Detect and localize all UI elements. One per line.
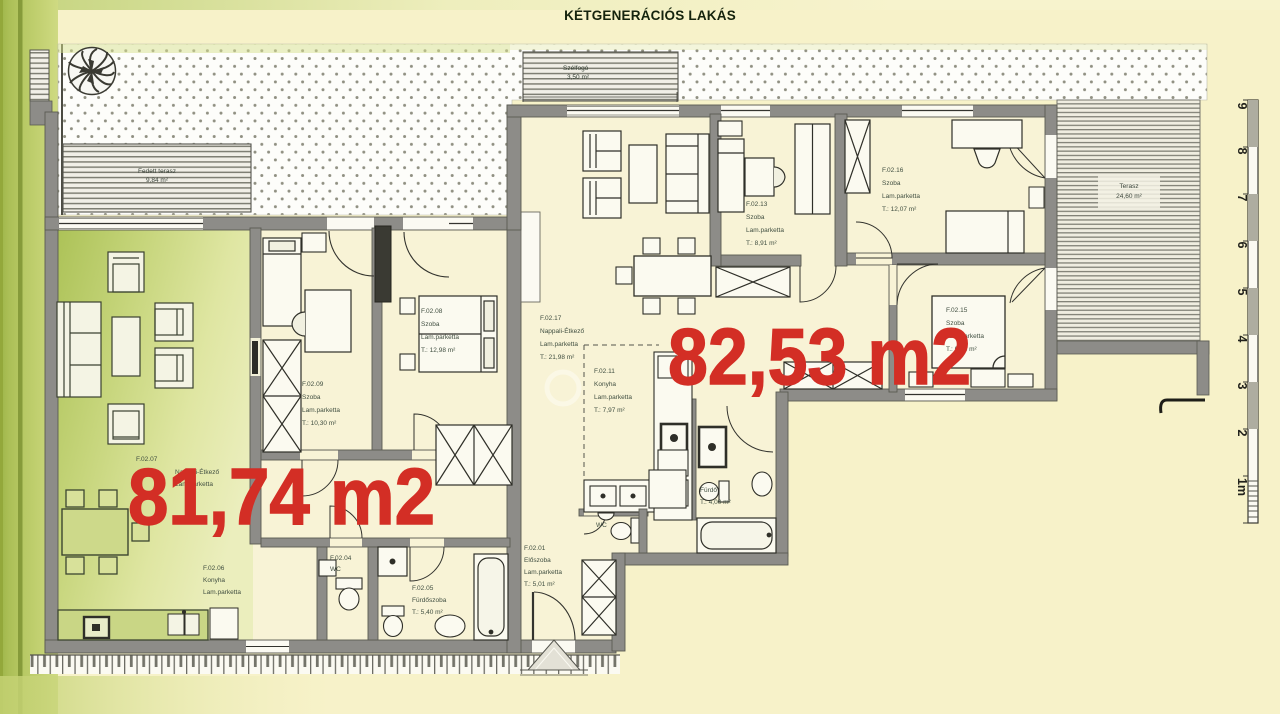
svg-text:Lam.parketta: Lam.parketta (203, 589, 241, 596)
svg-text:Lam.parketta: Lam.parketta (421, 334, 459, 341)
svg-text:Terasz: Terasz (1119, 183, 1138, 190)
svg-text:T.: 8,91 m²: T.: 8,91 m² (746, 240, 778, 247)
svg-text:Lam.parketta: Lam.parketta (540, 341, 578, 348)
svg-text:9,84 m²: 9,84 m² (146, 177, 169, 184)
svg-text:F.02.09: F.02.09 (302, 381, 324, 388)
svg-text:WC: WC (330, 566, 341, 573)
svg-text:T.: 7,97 m²: T.: 7,97 m² (594, 407, 626, 414)
svg-text:T.: 5,01 m²: T.: 5,01 m² (524, 581, 556, 588)
svg-text:Nappali-Étkező: Nappali-Étkező (540, 326, 584, 335)
svg-text:Fedett terasz: Fedett terasz (138, 168, 176, 175)
svg-text:F.02.04: F.02.04 (330, 555, 352, 562)
svg-text:T.: 5,40 m²: T.: 5,40 m² (412, 609, 444, 616)
svg-text:Lam.parketta: Lam.parketta (746, 227, 784, 234)
svg-text:7: 7 (1235, 195, 1249, 202)
svg-text:Lam.parketta: Lam.parketta (882, 193, 920, 200)
svg-text:6: 6 (1235, 242, 1249, 249)
svg-text:F.02.01: F.02.01 (524, 545, 546, 552)
svg-text:Fürdőszoba: Fürdőszoba (412, 597, 447, 604)
svg-text:24,60 m²: 24,60 m² (1116, 193, 1142, 200)
svg-text:KÉTGENERÁCIÓS LAKÁS: KÉTGENERÁCIÓS LAKÁS (564, 8, 736, 23)
svg-text:Szélfogó: Szélfogó (563, 65, 589, 72)
svg-text:F.02.11: F.02.11 (594, 368, 615, 375)
svg-text:82,53 m2: 82,53 m2 (668, 312, 971, 401)
svg-text:T.: 10,30 m²: T.: 10,30 m² (302, 420, 337, 427)
svg-text:8: 8 (1235, 148, 1249, 155)
svg-text:F.02.13: F.02.13 (746, 201, 768, 208)
svg-text:81,74 m2: 81,74 m2 (128, 452, 435, 541)
svg-text:3: 3 (1235, 383, 1249, 390)
svg-text:T.: 21,98 m²: T.: 21,98 m² (540, 354, 575, 361)
svg-text:F.02.16: F.02.16 (882, 167, 904, 174)
svg-text:T.: 12,07 m²: T.: 12,07 m² (882, 206, 917, 213)
svg-text:F.02.08: F.02.08 (421, 308, 443, 315)
svg-text:Szoba: Szoba (302, 394, 321, 401)
svg-text:1m: 1m (1235, 478, 1249, 496)
svg-text:Konyha: Konyha (594, 381, 616, 388)
svg-text:F.02.06: F.02.06 (203, 565, 225, 572)
svg-text:9: 9 (1235, 103, 1249, 110)
svg-text:Lam.parketta: Lam.parketta (594, 394, 632, 401)
svg-text:Előszoba: Előszoba (524, 557, 551, 564)
svg-text:Fürdő: Fürdő (700, 487, 717, 494)
svg-text:4: 4 (1235, 336, 1249, 343)
svg-text:3,50 m²: 3,50 m² (567, 74, 590, 81)
svg-text:T.: 12,98 m²: T.: 12,98 m² (421, 347, 456, 354)
svg-text:T.: 4,00 m²: T.: 4,00 m² (700, 499, 732, 506)
svg-text:2: 2 (1235, 430, 1249, 437)
svg-text:Lam.parketta: Lam.parketta (302, 407, 340, 414)
svg-text:5: 5 (1235, 289, 1249, 296)
svg-text:F.02.17: F.02.17 (540, 315, 562, 322)
svg-text:Lam.parketta: Lam.parketta (524, 569, 562, 576)
svg-text:WC: WC (596, 522, 607, 529)
svg-text:Szoba: Szoba (882, 180, 901, 187)
svg-text:F.02.05: F.02.05 (412, 585, 434, 592)
svg-text:Konyha: Konyha (203, 577, 225, 584)
svg-text:Szoba: Szoba (421, 321, 440, 328)
svg-text:Szoba: Szoba (746, 214, 765, 221)
